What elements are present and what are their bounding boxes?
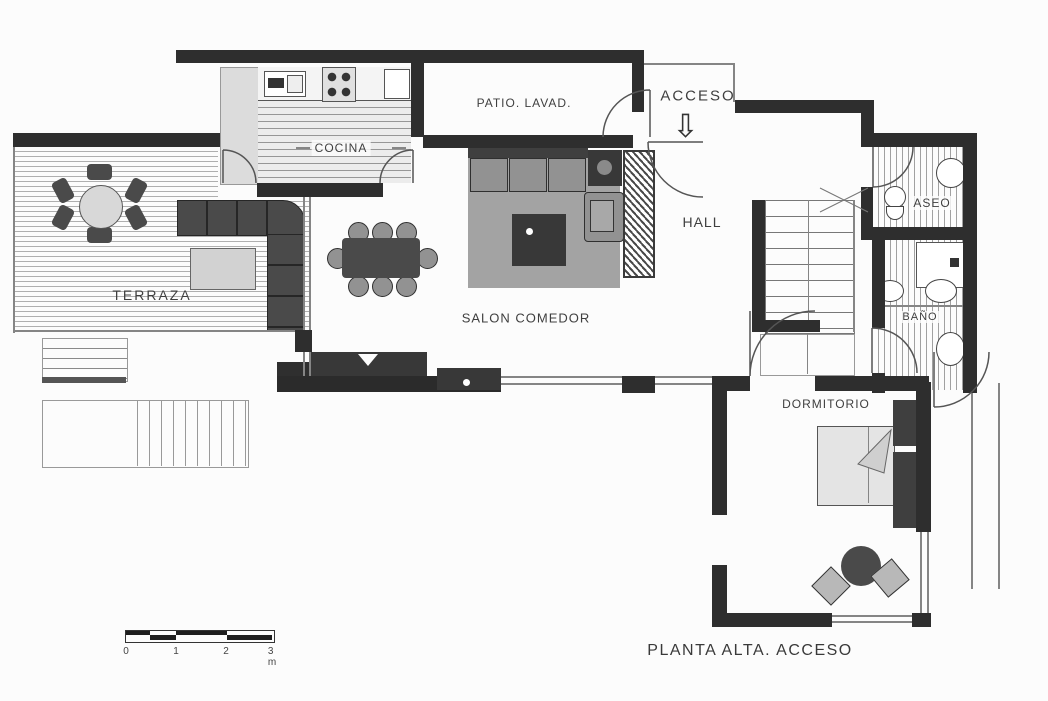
wall-aseo-bano-divider [861,227,963,240]
label-terraza: TERRAZA [112,287,191,303]
wall-dorm-bottom [712,613,832,627]
terrace-steps-upper [42,338,128,382]
label-cocina: COCINA [312,140,371,156]
plan-title: PLANTA ALTA. ACCESO [647,642,852,660]
dining-chair [417,248,438,269]
label-patio-lavadero: PATIO. LAVAD. [477,96,572,110]
terrace-chair [87,227,112,243]
dining-table [342,238,420,278]
wall-top-main [176,50,632,63]
wall-stairs-landing [752,320,820,332]
salon-bottom-window [501,376,712,378]
door-arc-acceso [648,142,703,197]
dorm-bottom-window [832,621,916,623]
bed-blanket-line [868,427,869,503]
wall-bano-left [872,240,885,328]
aseo-sink [936,158,966,188]
armchair [584,192,624,242]
wardrobe [893,452,917,528]
salon-bottom-window [501,383,712,385]
wall-aseo-top [874,133,977,147]
coffee-table [512,214,566,266]
wall-stairs-left [752,200,765,332]
wall-kitchen-right [411,63,424,137]
dining-chair [396,276,417,297]
shower-drain [950,258,959,267]
wall-pier-salon-dorm [622,376,655,393]
wall-kitchen-bottom [257,183,383,197]
dorm-right-window [920,532,922,615]
terrace-bottom-edge [13,330,311,332]
wall-right-outer [963,147,977,393]
cocina-label-dash [392,147,406,149]
wall-dorm-bottom-corner [912,613,931,627]
staircase-treads [765,200,855,334]
kitchen-stove [322,67,356,102]
terrace-round-table [79,185,123,229]
scale-bar-segment [150,635,176,640]
wall-wing-jog [861,100,874,147]
floor-plan: COCINA PATIO. LAVAD. ACCESO ⇩ HALL TERRA… [0,0,1048,701]
wall-terrace-salon-junction [295,330,312,352]
wall-salon-top [423,135,633,148]
side-table-bowl [597,160,612,175]
terrace-chair [87,164,112,180]
wall-dorm-top-a [727,376,750,391]
bed [817,426,895,506]
coffee-table-dot [526,228,533,235]
terrace-sofa-vertical [267,234,305,332]
sofa-cushion [548,158,586,192]
shelf-unit [623,150,655,278]
scale-bar-segment [227,635,272,640]
scale-tick-1: 1 [173,646,179,657]
sofa-cushion [470,158,508,192]
bano-sink [925,279,957,303]
media-unit-notch [358,354,378,366]
sofa-cushion [509,158,547,192]
scale-bar-segment [126,631,150,635]
wall-dorm-right [916,382,931,532]
balcony-edge [971,383,973,589]
terraza-decking [14,147,218,332]
balcony-edge [998,383,1000,589]
wardrobe [893,400,917,446]
scale-tick-2: 2 [223,646,229,657]
kitchen-sink [264,71,306,97]
scale-tick-3m: 3 m [268,646,276,668]
stairs-right-line [853,200,855,332]
kitchen-fridge [384,69,410,99]
label-acceso: ACCESO [660,88,735,105]
label-aseo: ASEO [911,196,952,210]
wall-terraza-top [13,133,220,147]
staircase-lower-line [807,334,808,374]
wall-wing-top [735,100,874,113]
media-unit-right [437,368,501,390]
terrace-coffee-table [190,248,256,290]
scale-tick-0: 0 [123,646,129,657]
dorm-bottom-window [832,615,916,617]
terrace-steps-dark-band [42,377,126,383]
dining-chair [372,276,393,297]
aseo-toilet-tank [884,186,906,208]
wall-acceso-left [632,50,644,112]
bano-toilet [936,332,965,366]
label-dormitorio: DORMITORIO [782,397,870,411]
armchair-seat [590,200,614,232]
sofa-back [468,148,588,158]
kitchen-pantry-strip [220,67,260,185]
acceso-arrow-icon: ⇩ [672,107,700,145]
sink-drainer [287,75,303,93]
terrace-left-edge [13,147,15,333]
dorm-right-window [927,532,929,615]
staircase-stringer [808,200,809,332]
dining-chair [348,276,369,297]
cocina-label-dash [296,147,310,149]
terrace-steps-lower [126,400,247,466]
sink-basin [268,78,284,88]
label-salon-comedor: SALON COMEDOR [462,311,591,326]
porch-top-line [644,63,735,65]
wall-dorm-top-b [815,376,929,391]
scale-bar-segment [176,631,227,635]
media-unit-dot [463,379,470,386]
side-table [588,150,622,186]
wall-dorm-left-upper [712,376,727,515]
bano-counter-edge [873,305,963,307]
label-bano: BAÑO [900,311,939,323]
label-hall: HALL [682,214,721,230]
terrace-sofa-horizontal [177,200,269,236]
